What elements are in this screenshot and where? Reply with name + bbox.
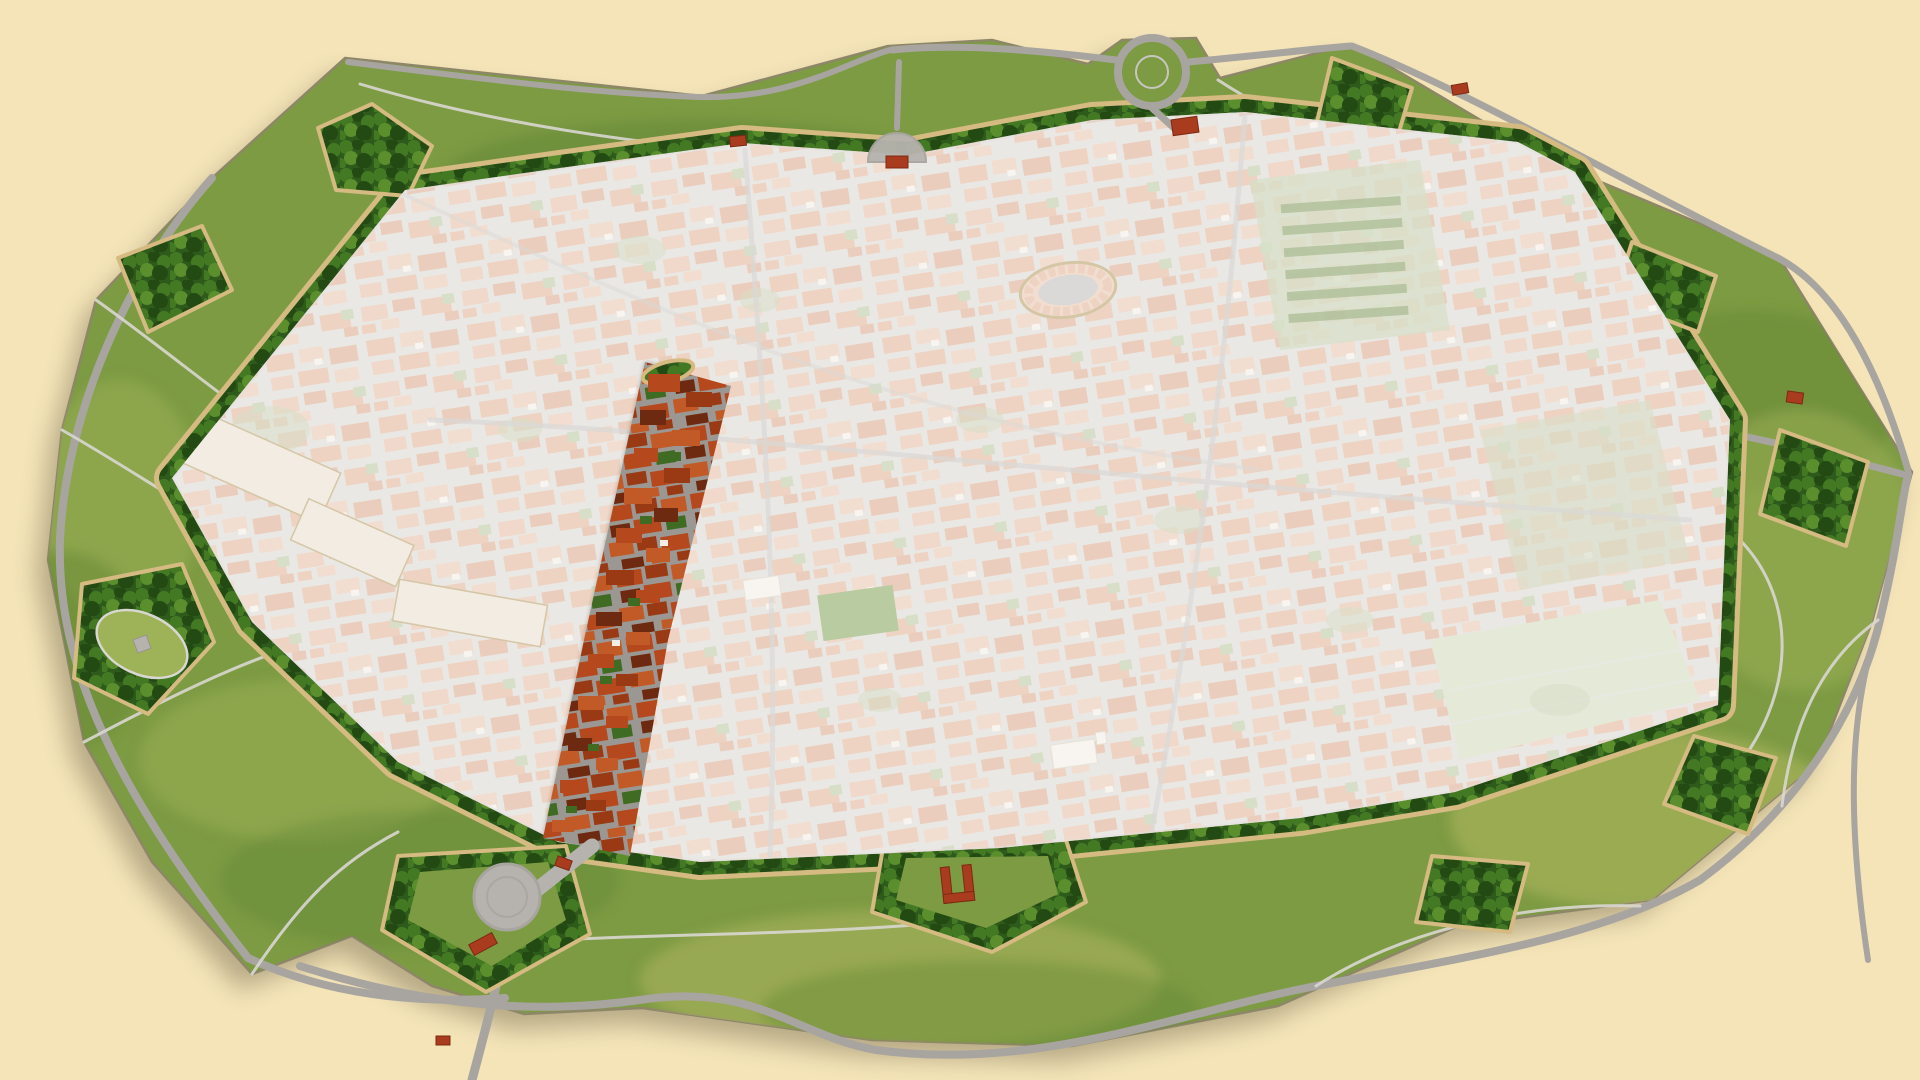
faded-town-haze xyxy=(172,112,1730,862)
south-gate-plaza xyxy=(474,864,540,930)
map-canvas xyxy=(0,0,1920,1080)
bastion-south-east2 xyxy=(1416,856,1528,932)
northeast-road-house xyxy=(1451,83,1468,96)
north-wall-house xyxy=(730,135,747,147)
east-gatehouse xyxy=(1786,391,1803,404)
northeast-gatehouse xyxy=(1171,116,1199,135)
southwest-road-house xyxy=(436,1036,450,1045)
walled-city-map-illustration xyxy=(0,0,1920,1080)
north-roundabout xyxy=(1118,38,1186,106)
north-gatehouse xyxy=(886,156,908,168)
